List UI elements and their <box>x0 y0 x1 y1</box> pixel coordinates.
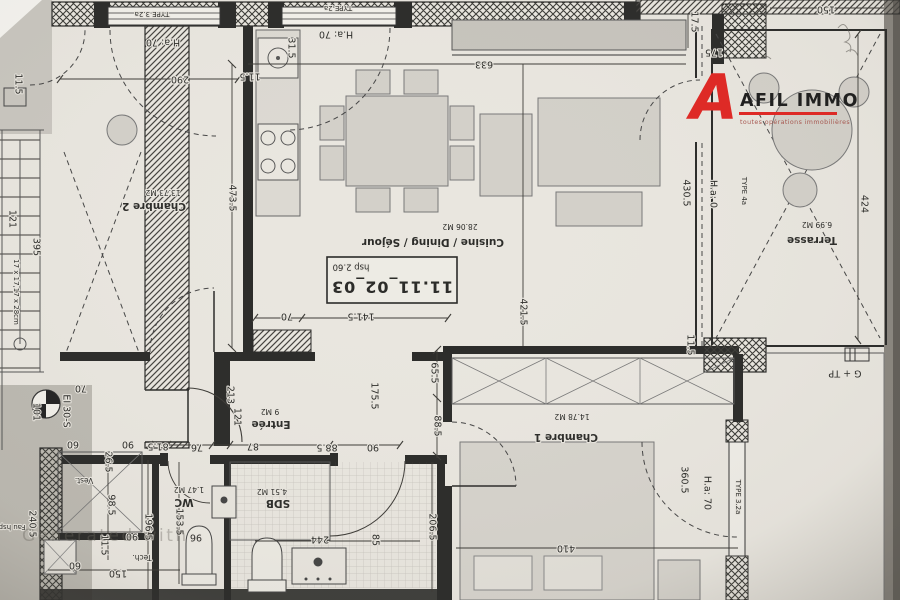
room-area: 6.99 M2 <box>802 220 833 229</box>
sofa <box>538 98 660 186</box>
dim-label: 633 <box>475 59 493 70</box>
dim-label: 81.5 <box>147 441 168 452</box>
chair <box>320 106 344 140</box>
sliding-window <box>452 20 686 50</box>
pillow <box>544 556 602 590</box>
dim-label: H.a: 0 <box>708 180 719 208</box>
logo-mark: A <box>685 61 738 134</box>
chair <box>320 146 344 180</box>
dim-label: 175.5 <box>369 382 380 409</box>
door-type-label: TYPE 4a <box>740 176 748 205</box>
dim-label: 290 <box>171 74 189 85</box>
door-type-label: TYPE 3.2a <box>135 10 171 18</box>
dim-label: 65.5 <box>429 362 440 383</box>
door-type-label: TYPE 3.2a <box>734 479 742 515</box>
dim-label: 395 <box>31 238 42 256</box>
dim-label: 70 <box>75 383 87 394</box>
stool <box>107 115 137 145</box>
logo-tagline: toutes opérations immobilières <box>740 118 850 126</box>
room-area: 1.47 M2 <box>174 485 205 494</box>
floor-plan-svg: 11.11_02_03 hsp 2.60 Chambre 2 13.73 M2 … <box>0 0 900 600</box>
dim-label: 88.5 <box>316 442 337 453</box>
dim-label: 17.5 <box>689 11 700 32</box>
dim-label: 213 <box>225 386 236 404</box>
dim-label: 70 <box>281 311 293 322</box>
dim-label: 421.5 <box>518 298 529 325</box>
dim-label: 150 <box>817 4 835 15</box>
room-label: Terrasse <box>787 234 837 246</box>
dim-label: 101 <box>31 403 42 421</box>
dim-label: 26.5 <box>103 451 114 472</box>
dim-label: 60 <box>67 439 79 450</box>
dim-label: H.a: 70 <box>319 29 353 40</box>
chair <box>356 70 390 94</box>
dim-label: 11.5 <box>13 73 24 94</box>
dim-label: 141.5 <box>347 311 374 322</box>
unit-reference-box: 11.11_02_03 hsp 2.60 <box>327 257 457 303</box>
room-label: Tech. <box>132 553 152 562</box>
dim-label: 96 <box>190 532 202 543</box>
ceiling-height: hsp 2.60 <box>333 262 370 272</box>
dim-label: 88.5 <box>432 415 443 436</box>
room-label: SDB <box>266 497 290 509</box>
toilet <box>252 538 282 582</box>
watermark: Generated with <box>22 526 189 546</box>
dim-label: H.a: 70 <box>146 37 180 48</box>
chair <box>450 146 474 180</box>
dim-label: 410 <box>557 543 575 554</box>
nightstand <box>658 560 700 600</box>
dim-label: 60 <box>69 560 81 571</box>
room-label: Chambre 2 <box>122 200 186 212</box>
room-area: 4.51 M2 <box>257 487 288 496</box>
armchair <box>480 114 532 196</box>
dim-label: G + TP <box>828 368 861 379</box>
dim-label: 90 <box>122 439 134 450</box>
dim-label: 87 <box>247 441 259 452</box>
dim-label: 85 <box>370 534 381 546</box>
dim-label: 11.5 <box>685 334 696 355</box>
room-label: Chambre 1 <box>534 431 598 443</box>
logo-underline <box>739 112 837 115</box>
dining-table <box>346 96 448 186</box>
room-area: 14.78 M2 <box>554 412 589 421</box>
dim-label: 244 <box>311 534 329 545</box>
dim-label: 98.5 <box>106 494 117 515</box>
door-type-label: TYPE 2a <box>324 4 353 12</box>
dim-label: 76 <box>191 442 203 453</box>
pillow <box>474 556 532 590</box>
stair-party-wall <box>145 26 189 448</box>
dim-label: 360.5 <box>679 466 690 493</box>
chair <box>356 188 390 212</box>
dim-label: 150 <box>109 568 127 579</box>
dim-label: 424 <box>859 195 870 213</box>
chair <box>450 106 474 140</box>
room-label: Vest. <box>75 476 93 485</box>
stair-note: 17 x 17,17 x 28cm <box>12 259 20 325</box>
dim-label: 175 <box>705 47 723 58</box>
room-label: WC <box>174 496 194 508</box>
room-area: 13.73 M2 <box>145 188 180 197</box>
logo-brand: AFIL IMMO <box>740 91 859 111</box>
fire-door-label: EI 30-S <box>61 394 72 427</box>
dim-label: 430.5 <box>681 179 692 206</box>
chair <box>404 70 438 94</box>
dim-label: 121 <box>7 210 18 228</box>
room-area: 28.06 M2 <box>442 222 477 231</box>
floor-plan-photo: 11.11_02_03 hsp 2.60 Chambre 2 13.73 M2 … <box>0 0 900 600</box>
coffee-table <box>556 192 642 226</box>
room-area: 9 M2 <box>261 407 280 416</box>
room-label: Entrée <box>251 418 290 430</box>
room-label: Cuisine / Dining / Séjour <box>361 236 504 248</box>
dim-label: 206.5 <box>427 513 438 540</box>
unit-reference: 11.11_02_03 <box>331 278 453 297</box>
dim-label: 121 <box>232 408 243 426</box>
terrace-chair <box>783 173 817 207</box>
dim-label: 90 <box>367 442 379 453</box>
dim-label: 11.5 <box>239 71 260 82</box>
dim-label: 473.5 <box>227 184 238 211</box>
chair <box>404 188 438 212</box>
dim-label: 31.5 <box>286 37 297 58</box>
dim-label: H.a: 70 <box>702 476 713 510</box>
